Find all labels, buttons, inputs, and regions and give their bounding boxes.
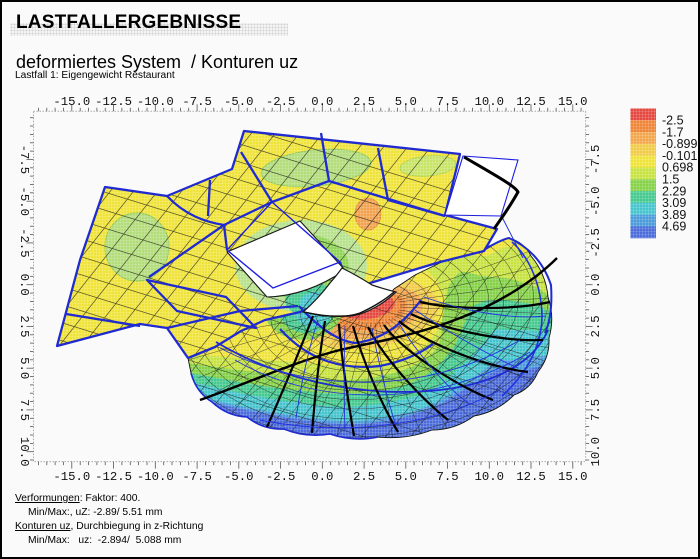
svg-text:-2.5: -2.5 [589, 228, 603, 258]
svg-text:12.5: 12.5 [516, 95, 546, 109]
svg-text:-12.5: -12.5 [95, 95, 132, 109]
svg-text:0.0: 0.0 [17, 274, 31, 296]
svg-text:2.5: 2.5 [353, 95, 375, 109]
svg-text:7.5: 7.5 [589, 399, 603, 421]
svg-text:5.0: 5.0 [395, 95, 417, 109]
svg-text:-7.5: -7.5 [182, 95, 212, 109]
svg-text:-5.0: -5.0 [589, 186, 603, 216]
svg-text:5.0: 5.0 [589, 357, 603, 379]
svg-text:10.0: 10.0 [475, 95, 505, 109]
svg-text:-7.5: -7.5 [17, 145, 31, 175]
svg-text:-7.5: -7.5 [589, 145, 603, 175]
svg-text:0.0: 0.0 [311, 470, 333, 484]
svg-text:7.5: 7.5 [17, 399, 31, 421]
svg-text:5.0: 5.0 [17, 357, 31, 379]
svg-text:15.0: 15.0 [558, 95, 588, 109]
svg-text:-10.0: -10.0 [137, 95, 174, 109]
svg-text:5.0: 5.0 [395, 470, 417, 484]
svg-text:0.0: 0.0 [311, 95, 333, 109]
svg-text:-5.0: -5.0 [224, 95, 254, 109]
svg-text:0.0: 0.0 [589, 274, 603, 296]
svg-text:-12.5: -12.5 [95, 470, 132, 484]
svg-text:2.5: 2.5 [17, 315, 31, 337]
svg-text:7.5: 7.5 [437, 95, 459, 109]
svg-text:-2.5: -2.5 [266, 95, 296, 109]
svg-text:10.0: 10.0 [17, 437, 31, 467]
svg-text:12.5: 12.5 [516, 470, 546, 484]
svg-text:-15.0: -15.0 [53, 95, 90, 109]
svg-text:15.0: 15.0 [558, 470, 588, 484]
svg-text:-5.0: -5.0 [17, 186, 31, 216]
svg-text:2.5: 2.5 [589, 315, 603, 337]
svg-text:4.69: 4.69 [662, 220, 686, 234]
svg-text:-5.0: -5.0 [224, 470, 254, 484]
svg-text:-2.5: -2.5 [266, 470, 296, 484]
svg-text:-10.0: -10.0 [137, 470, 174, 484]
svg-text:-15.0: -15.0 [53, 470, 90, 484]
svg-text:7.5: 7.5 [437, 470, 459, 484]
svg-text:10.0: 10.0 [475, 470, 505, 484]
svg-text:2.5: 2.5 [353, 470, 375, 484]
svg-text:10.0: 10.0 [589, 437, 603, 467]
svg-text:-7.5: -7.5 [182, 470, 212, 484]
svg-text:-2.5: -2.5 [17, 228, 31, 258]
